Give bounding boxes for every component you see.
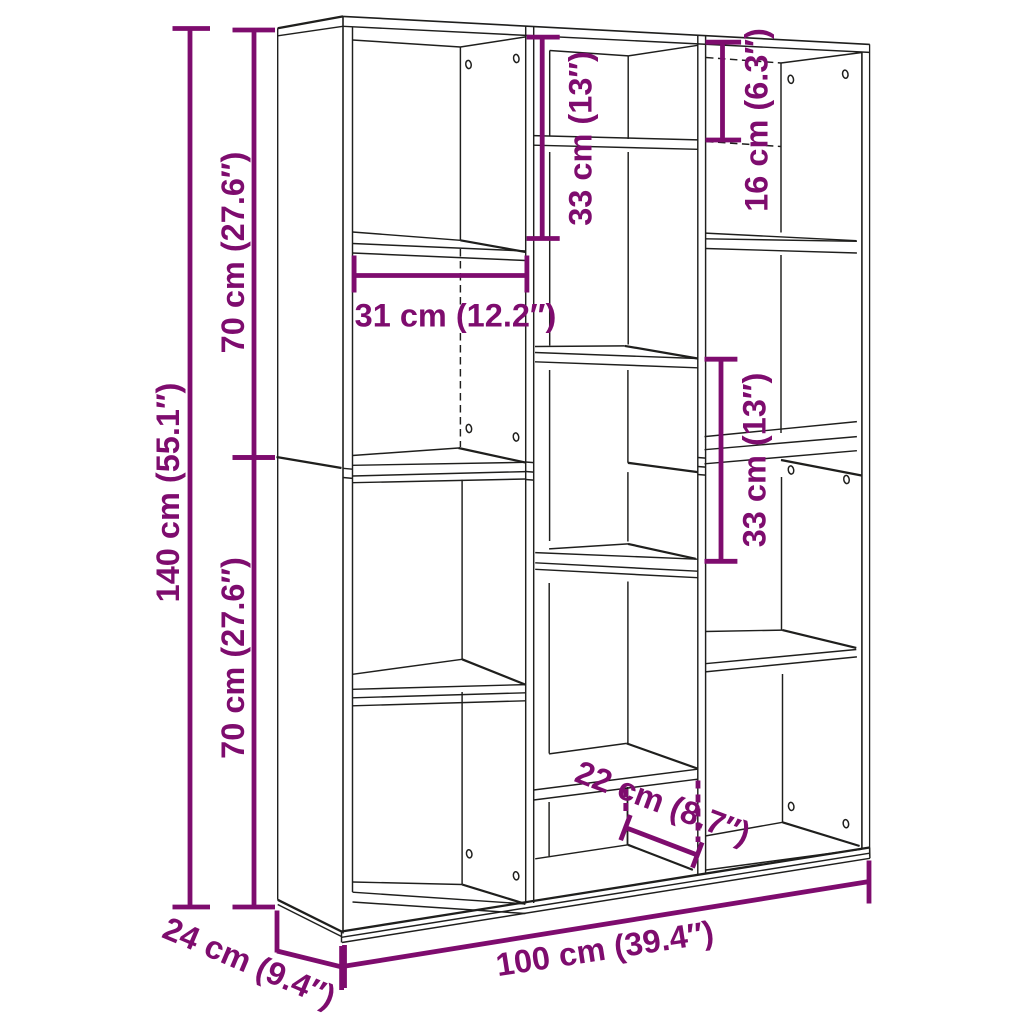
svg-text:33 cm (13″): 33 cm (13″) (737, 373, 773, 548)
svg-text:16 cm (6.3″): 16 cm (6.3″) (739, 28, 775, 212)
svg-text:31 cm (12.2″): 31 cm (12.2″) (355, 298, 557, 334)
svg-text:33 cm (13″): 33 cm (13″) (563, 51, 599, 226)
svg-text:70 cm (27.6″): 70 cm (27.6″) (215, 152, 251, 354)
svg-text:140 cm (55.1″): 140 cm (55.1″) (150, 383, 186, 603)
svg-text:70 cm (27.6″): 70 cm (27.6″) (215, 557, 251, 759)
